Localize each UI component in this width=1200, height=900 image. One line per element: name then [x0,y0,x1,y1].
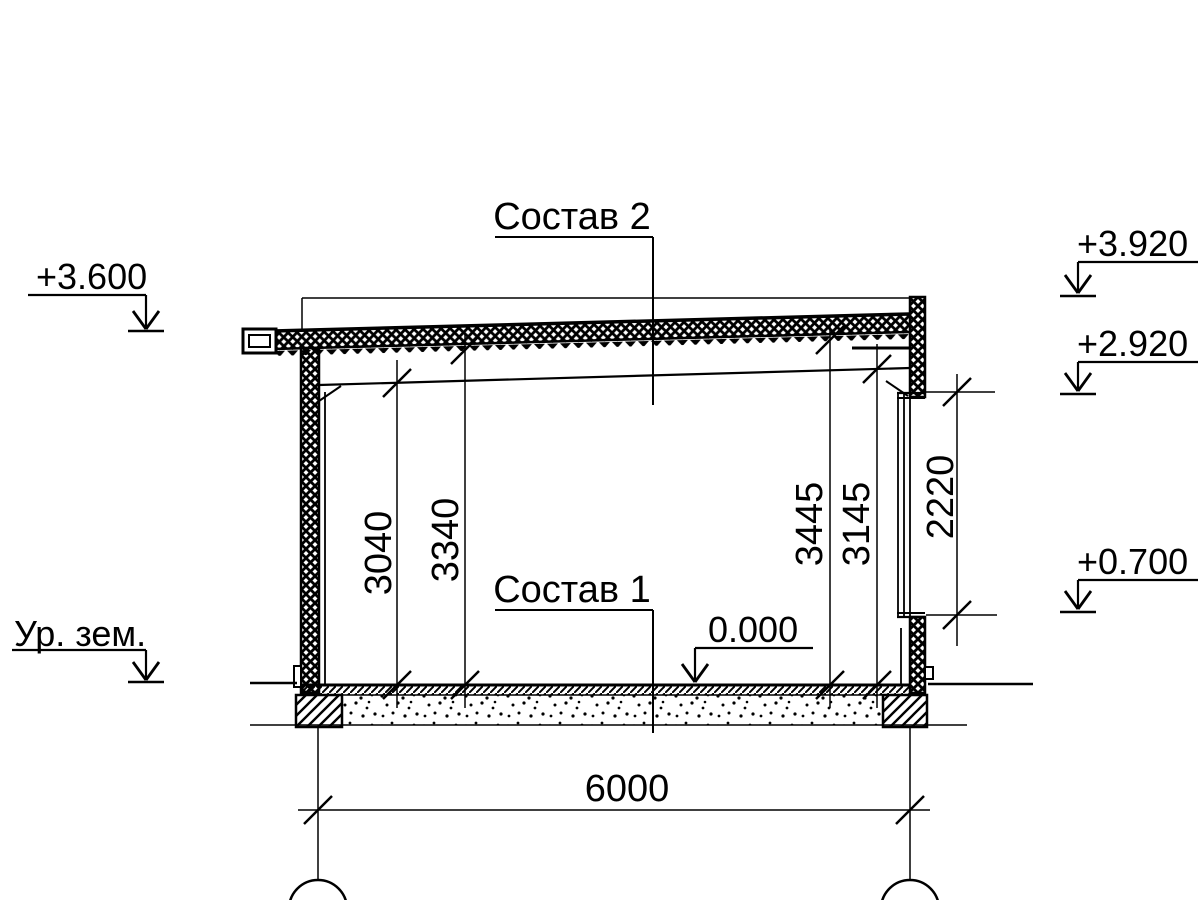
right-wall-upper [910,297,925,397]
axis-circle-left [289,880,347,900]
composition1-label: Состав 1 [493,569,651,611]
dim-roof-right-value: 3445 [789,482,831,567]
dim-ceiling-right-value: 3145 [836,482,878,567]
dim-window-height: 2220 [920,374,997,646]
building-section-drawing: Состав 2 Состав 1 +3.600 Ур. зем. 0.000 [0,0,1200,900]
floor-zero-value: 0.000 [708,609,798,650]
elevation-left-roof-value: +3.600 [36,256,147,297]
axis-circle-right [881,880,939,900]
elevation-ground-level: Ур. зем. [12,613,164,682]
drawing-sheet: Состав 2 Состав 1 +3.600 Ур. зем. 0.000 [0,0,1200,900]
dim-ceiling-left-value: 3040 [358,511,400,596]
ground-level-label: Ур. зем. [14,613,146,654]
dim-roof-left: 3340 [425,334,479,708]
foundation-left [296,695,342,727]
elevation-window-head: +2.920 [1060,323,1198,394]
parapet-value: +3.920 [1077,223,1188,264]
right-wall-lower [910,617,925,693]
composition2-label: Состав 2 [493,196,651,238]
window-head-value: +2.920 [1077,323,1188,364]
left-wall [301,348,319,693]
dim-axis-span: 6000 [289,726,939,900]
dim-axis-span-value: 6000 [585,768,670,810]
window-sill-value: +0.700 [1077,541,1188,582]
elevation-left-roof: +3.600 [28,256,164,331]
right-drip-ledge [925,667,933,679]
foundation-right [883,695,927,727]
bedding-stipple [342,695,883,725]
roof-slab [273,314,910,356]
elevation-floor-zero: 0.000 [682,609,813,682]
eave-box [243,329,276,353]
dim-ceiling-left: 3040 [358,360,411,708]
dim-window-height-value: 2220 [920,455,962,540]
elevation-window-sill: +0.700 [1060,541,1198,612]
elevation-parapet: +3.920 [1060,223,1198,296]
leader-composition2: Состав 2 [493,196,653,405]
dim-roof-left-value: 3340 [425,498,467,583]
dim-ceiling-right: 3145 [836,344,891,708]
